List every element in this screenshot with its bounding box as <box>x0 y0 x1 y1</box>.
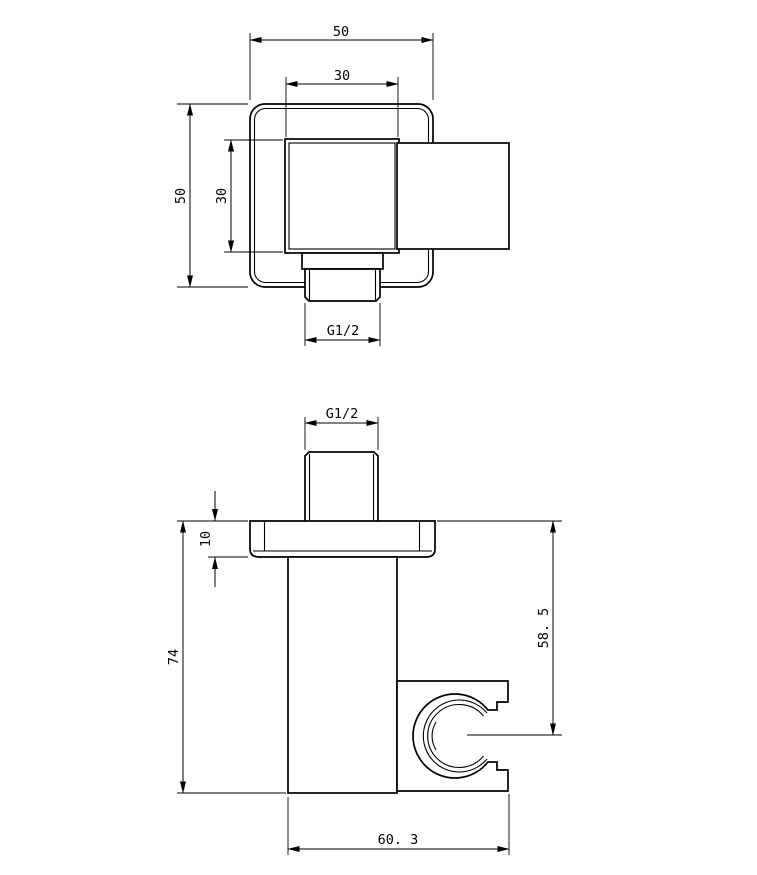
dim-label: 58. 5 <box>536 608 552 649</box>
dim-label: 10 <box>198 531 214 547</box>
drawing-svg: 50 30 50 30 G1/2 <box>0 0 757 875</box>
dim-flange-thickness: 10 <box>198 491 248 587</box>
square-body-outline <box>285 139 399 253</box>
holder-clip-slot-arc <box>432 722 436 750</box>
holder-clip-arc-inner <box>428 705 484 768</box>
holder-block-plan <box>397 143 509 249</box>
dim-label: 30 <box>214 188 230 204</box>
body-column <box>288 557 397 793</box>
dim-label: 30 <box>334 68 350 84</box>
holder-block-front <box>397 681 508 791</box>
dim-overall-depth: 60. 3 <box>288 794 509 855</box>
connector-neck <box>302 253 383 269</box>
wall-flange <box>250 521 435 557</box>
thread-stub <box>305 452 378 521</box>
dim-label: G1/2 <box>326 406 359 422</box>
thread-collar-plan <box>305 269 380 301</box>
dim-label: 50 <box>333 24 349 40</box>
dim-top-overall-height: 50 <box>173 104 248 287</box>
dim-label: 50 <box>173 188 189 204</box>
dim-top-overall-width: 50 <box>250 24 433 100</box>
technical-drawing-sheet: 50 30 50 30 G1/2 <box>0 0 757 875</box>
dim-holder-center-drop: 58. 5 <box>437 521 562 735</box>
dim-label: 74 <box>166 649 182 665</box>
front-view: G1/2 10 74 58. 5 60. 3 <box>166 406 562 855</box>
dim-top-thread: G1/2 <box>305 303 380 346</box>
dim-label: 60. 3 <box>378 832 419 848</box>
dim-label: G1/2 <box>327 323 360 339</box>
dim-overall-height: 74 <box>166 521 286 793</box>
top-view: 50 30 50 30 G1/2 <box>173 24 509 346</box>
dim-front-thread: G1/2 <box>305 406 378 450</box>
